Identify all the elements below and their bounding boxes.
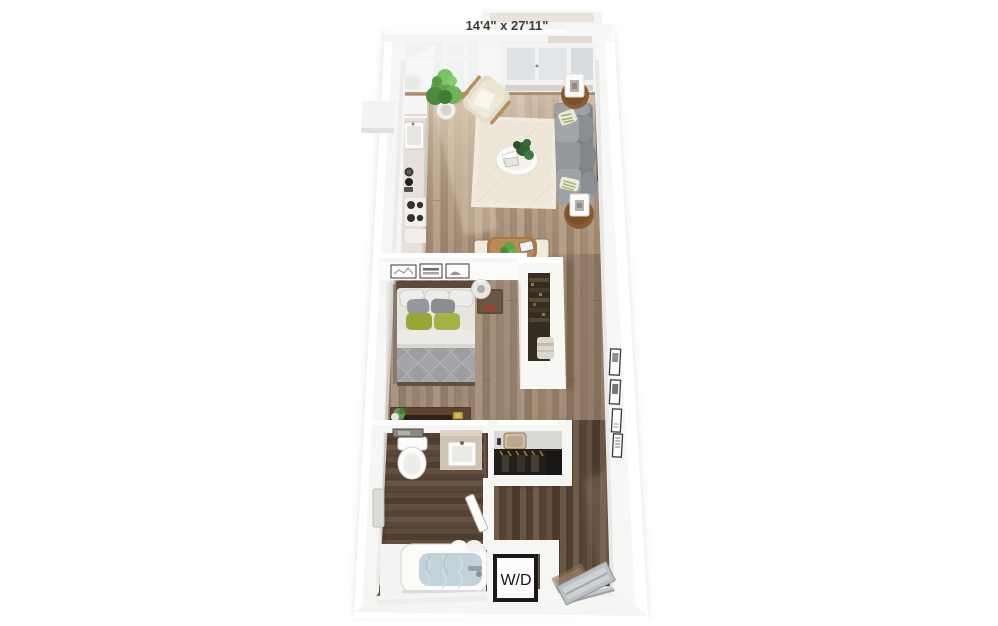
svg-text:W/D: W/D — [500, 572, 531, 589]
svg-text:14'4" x 27'11": 14'4" x 27'11" — [466, 18, 549, 33]
